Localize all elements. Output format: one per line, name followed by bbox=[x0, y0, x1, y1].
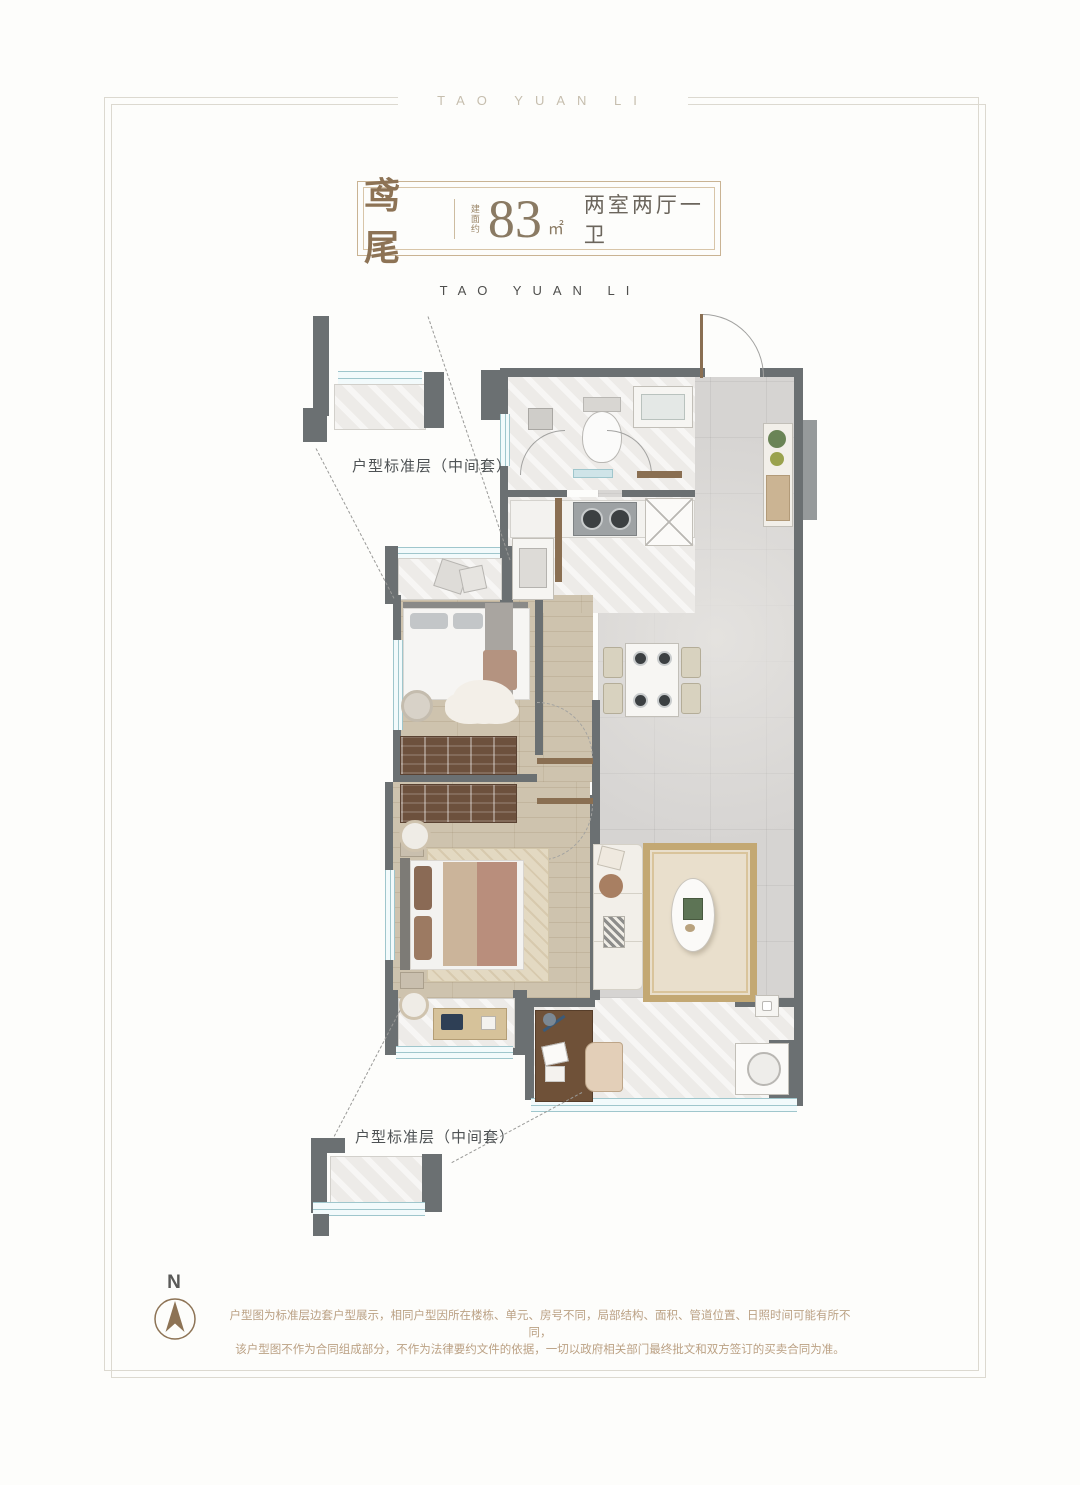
fragment-a-sill bbox=[334, 384, 426, 430]
fragment-b-block-right bbox=[422, 1154, 442, 1212]
title-divider bbox=[454, 199, 455, 239]
callout-bottom: 户型标准层（中间套） bbox=[355, 1126, 515, 1147]
wall-between-bedrooms bbox=[395, 774, 537, 782]
washing-machine-drum bbox=[747, 1052, 781, 1086]
master-pillow-2 bbox=[414, 916, 432, 960]
master-window-left bbox=[385, 870, 395, 960]
cloud-rug bbox=[453, 680, 515, 724]
dining-chair-2 bbox=[603, 683, 623, 714]
bathroom-mirror-box bbox=[528, 408, 553, 430]
bedroom2-window bbox=[393, 640, 403, 730]
bedside-rug-2 bbox=[401, 690, 433, 722]
plant-icon-2 bbox=[770, 452, 784, 466]
sofa-round-cushion bbox=[599, 874, 623, 898]
callout-top: 户型标准层（中间套） bbox=[352, 455, 512, 476]
nightstand-2 bbox=[400, 972, 424, 989]
bed2-pillow-1 bbox=[410, 613, 448, 629]
wall-neighbor-right bbox=[803, 420, 817, 520]
place-setting-3 bbox=[633, 693, 648, 708]
area-label: 建面约 bbox=[469, 204, 480, 234]
wall-switch-dot bbox=[762, 1001, 772, 1011]
kitchen-slide-door bbox=[555, 498, 562, 582]
fragment-a-wall-foot bbox=[303, 408, 327, 442]
wall-master-left-a bbox=[385, 782, 393, 870]
fragment-b-wall-foot bbox=[313, 1214, 329, 1236]
master-bay-glazing bbox=[396, 1046, 513, 1059]
bedside-rug-m1 bbox=[399, 820, 431, 852]
wall-bath-kitchen-b bbox=[622, 490, 695, 497]
bed2-pillow-2 bbox=[453, 613, 483, 629]
area-value: 83 bbox=[488, 192, 542, 246]
fragment-b-glazing bbox=[313, 1202, 425, 1216]
wardrobe-bedroom2 bbox=[400, 736, 517, 775]
master-bay-block-right bbox=[513, 990, 527, 1055]
fragment-b-sill bbox=[330, 1156, 424, 1204]
master-pillow-1 bbox=[414, 866, 432, 910]
unit-name: 鸢尾 bbox=[364, 167, 440, 271]
compass-icon bbox=[152, 1296, 198, 1342]
plant-icon bbox=[768, 430, 786, 448]
dining-chair-4 bbox=[681, 683, 701, 714]
dining-chair-1 bbox=[603, 647, 623, 678]
towel-bench bbox=[573, 469, 613, 478]
place-setting-2 bbox=[657, 651, 672, 666]
master-blanket-rose bbox=[477, 862, 517, 966]
stove-burner-2 bbox=[609, 508, 631, 530]
master-blanket-beige bbox=[443, 862, 477, 966]
place-setting-4 bbox=[657, 693, 672, 708]
dining-chair-3 bbox=[681, 647, 701, 678]
bedroom2-door-leaf bbox=[537, 758, 593, 764]
master-bed-headboard bbox=[400, 858, 410, 970]
fragment-a-wall-v bbox=[313, 316, 329, 416]
wall-master-left-b bbox=[385, 960, 393, 995]
area-unit: ㎡ bbox=[548, 215, 564, 239]
cabinet-shelf bbox=[766, 475, 790, 521]
wall-corridor-dining bbox=[592, 700, 600, 800]
bay-console-button bbox=[481, 1016, 496, 1030]
bedside-rug-m2 bbox=[399, 990, 429, 1020]
coffee-table-book bbox=[683, 898, 703, 920]
disclaimer-line-1: 户型图为标准层边套户型展示，相同户型因所在楼栋、单元、房号不同，局部结构、面积、… bbox=[220, 1308, 860, 1342]
fragment-a-block-right bbox=[424, 372, 444, 428]
wardrobe-master bbox=[400, 784, 517, 823]
bathroom-sink-basin bbox=[641, 394, 685, 420]
wall-bath-kitchen-a bbox=[505, 490, 567, 497]
unit-title-box: 鸢尾 建面约 83 ㎡ 两室两厅一卫 bbox=[357, 181, 721, 256]
bay-console-screen bbox=[441, 1014, 463, 1030]
wall-living-balcony-a bbox=[525, 998, 595, 1007]
place-setting-1 bbox=[633, 651, 648, 666]
fragment-b-wall-h bbox=[311, 1138, 345, 1153]
wall-bedroom2-left bbox=[393, 595, 401, 640]
entry-door-leaf bbox=[700, 314, 703, 378]
toilet-tank bbox=[583, 397, 621, 412]
frame-brand-text: TAO YUAN LI bbox=[398, 86, 688, 116]
wall-top-bath bbox=[503, 368, 705, 377]
stove-burner-1 bbox=[581, 508, 603, 530]
unit-title-inner: 鸢尾 建面约 83 ㎡ 两室两厅一卫 bbox=[363, 187, 715, 250]
disclaimer-line-2: 该户型图不作为合同组成部分，不作为法律要约文件的依据，一切以政府相关部门最终批文… bbox=[220, 1342, 860, 1359]
subtitle-brand: TAO YUAN LI bbox=[0, 283, 1080, 298]
compass-n-label: N bbox=[152, 1272, 196, 1294]
bath-shelf bbox=[637, 471, 682, 478]
wall-bath-left-a bbox=[500, 368, 508, 414]
unit-layout: 两室两厅一卫 bbox=[584, 189, 714, 249]
coffee-table-cup bbox=[685, 924, 695, 932]
bay2-pillow-2 bbox=[459, 565, 487, 593]
desk-paper bbox=[545, 1066, 565, 1082]
desk-chair bbox=[585, 1042, 623, 1092]
sofa-zigzag-pillow bbox=[603, 916, 625, 948]
desk-plant bbox=[543, 1013, 556, 1026]
kitchen-sink-basin bbox=[519, 548, 547, 588]
fridge-icon bbox=[645, 498, 693, 546]
disclaimer-text: 户型图为标准层边套户型展示，相同户型因所在楼栋、单元、房号不同，局部结构、面积、… bbox=[220, 1308, 860, 1359]
wall-right bbox=[794, 368, 803, 1106]
